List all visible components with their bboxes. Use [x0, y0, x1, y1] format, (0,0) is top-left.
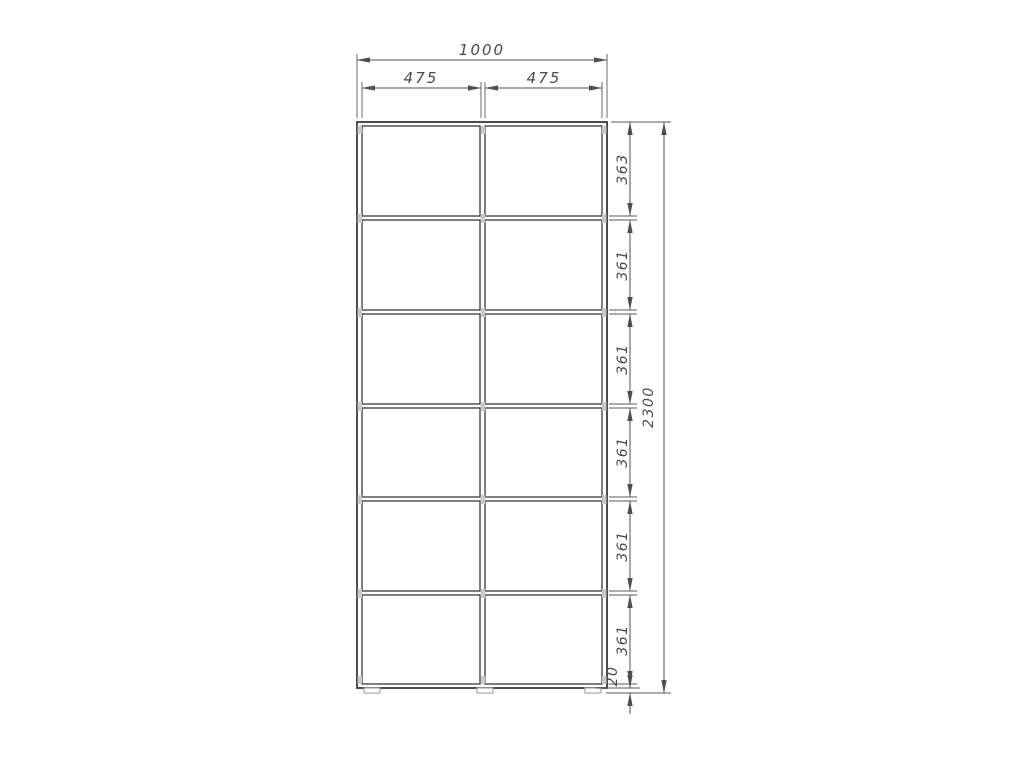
dim-label-row-5: 361	[615, 530, 631, 561]
cabinet-cell	[485, 220, 602, 310]
foot-middle	[477, 688, 493, 693]
cabinet-cell	[485, 408, 602, 497]
cabinet-cell	[485, 595, 602, 684]
dim-label-overall-height: 2300	[641, 386, 657, 428]
cabinet-body	[357, 122, 607, 693]
dim-label-column-left: 475	[404, 69, 439, 87]
foot-left	[364, 688, 380, 693]
dim-label-row-6: 361	[615, 624, 631, 655]
cabinet-cell	[362, 595, 480, 684]
dim-label-row-1: 363	[615, 153, 631, 184]
drawing-canvas: 1000 475 475 363 361 3	[0, 0, 1024, 768]
cabinet-cell	[485, 501, 602, 591]
dim-label-row-4: 361	[615, 436, 631, 467]
cabinet-technical-drawing: 1000 475 475 363 361 3	[0, 0, 1024, 768]
dim-label-plinth: 20	[605, 666, 621, 687]
dimension-overall-width: 1000	[357, 41, 607, 118]
cabinet-cell	[485, 126, 602, 216]
dim-label-column-right: 475	[527, 69, 562, 87]
cam-lock-fittings	[358, 126, 607, 684]
cabinet-cell	[362, 501, 480, 591]
cabinet-cell	[362, 220, 480, 310]
dimension-plinth-height: 20	[605, 666, 630, 714]
dim-label-overall-width: 1000	[459, 41, 505, 59]
dim-label-row-2: 361	[615, 249, 631, 280]
foot-right	[585, 688, 601, 693]
dim-label-row-3: 361	[615, 343, 631, 374]
cabinet-cell	[485, 314, 602, 404]
dimension-row-heights: 363 361 361 361 361 361	[615, 122, 631, 684]
dimension-column-widths: 475 475	[362, 69, 602, 118]
dimension-overall-height: 2300	[641, 122, 664, 693]
cabinet-cell	[362, 126, 480, 216]
cabinet-cell	[362, 408, 480, 497]
cabinet-cell	[362, 314, 480, 404]
